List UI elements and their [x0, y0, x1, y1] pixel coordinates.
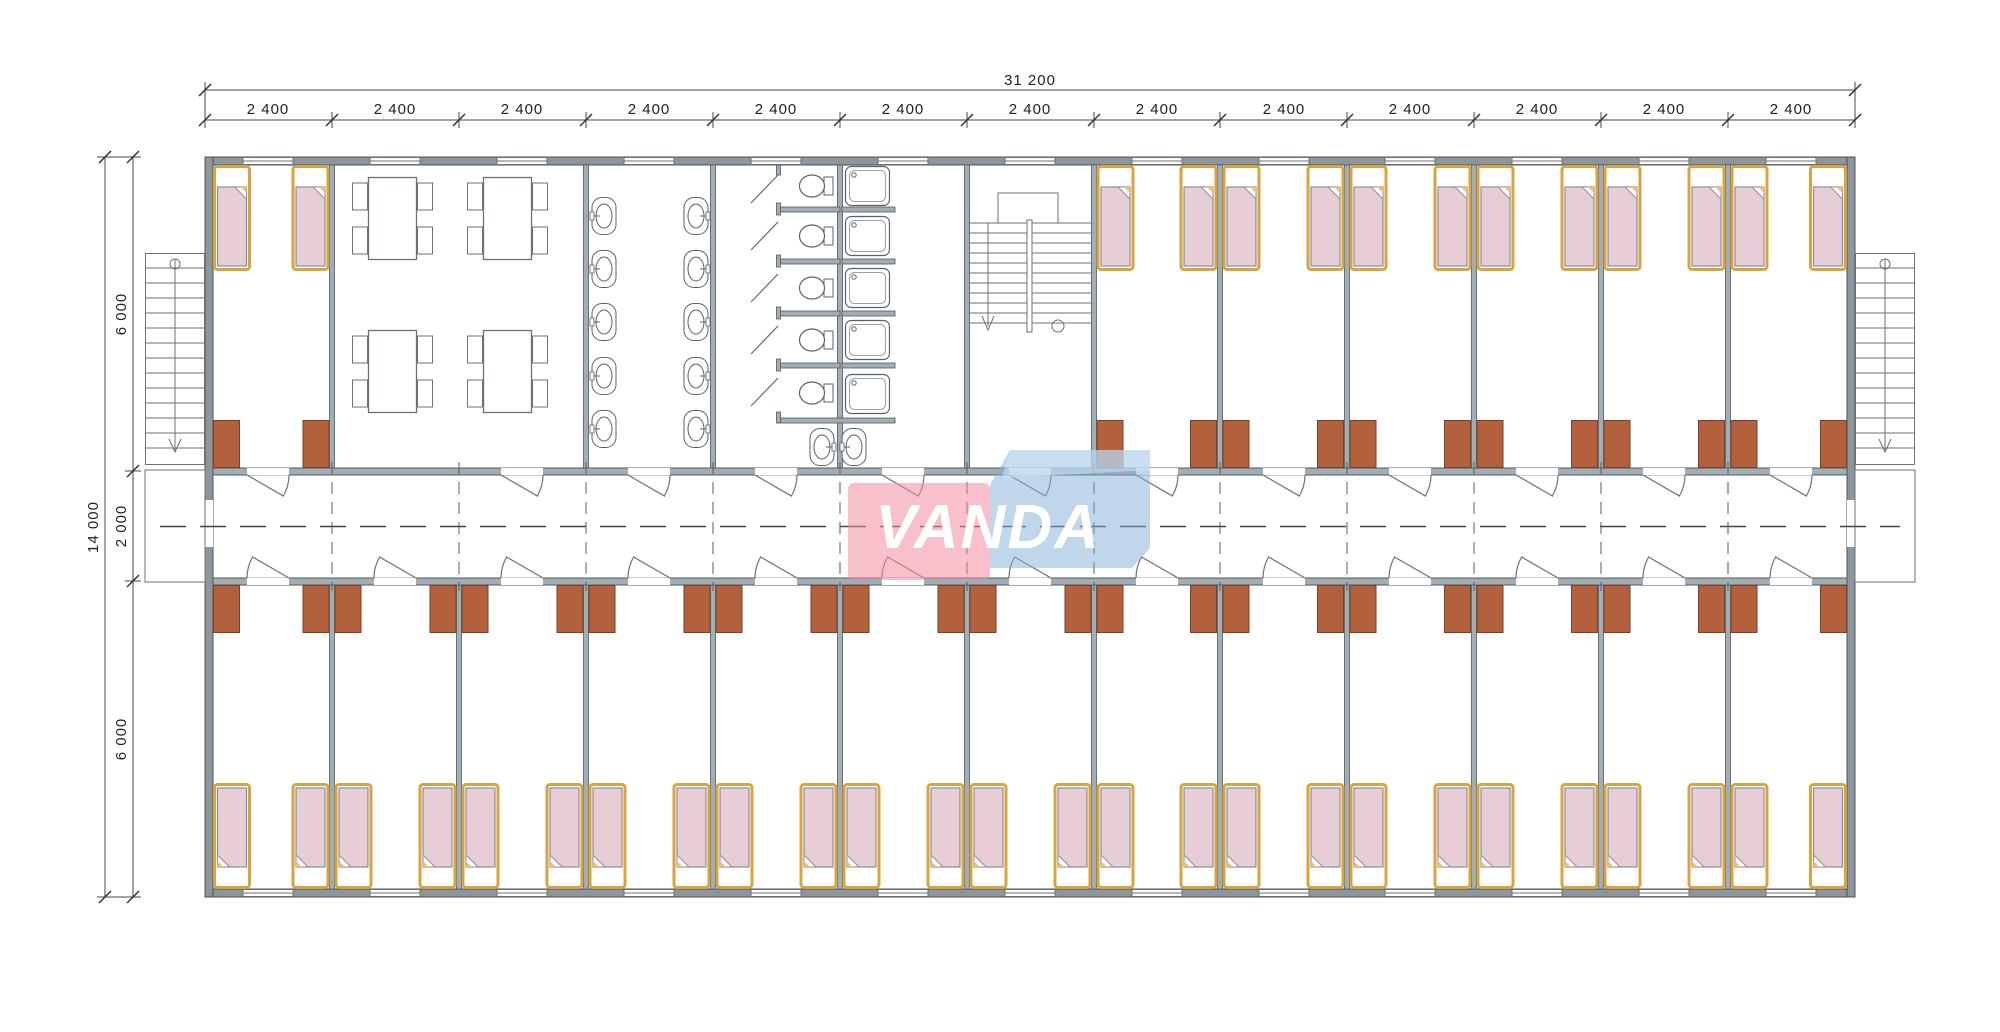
- shower-tray: [846, 321, 890, 360]
- window: [1132, 158, 1182, 165]
- bed: [1224, 167, 1259, 270]
- sink: [590, 304, 616, 341]
- showers: [846, 167, 890, 414]
- bed: [1478, 785, 1513, 888]
- window: [243, 158, 293, 165]
- height-segment-label: 6 000: [113, 718, 130, 761]
- window: [497, 158, 547, 165]
- dining-table: [468, 331, 548, 413]
- wardrobe: [1477, 421, 1503, 468]
- wardrobe: [462, 586, 488, 633]
- bay-dim-label: 2 400: [1643, 101, 1686, 118]
- wardrobe: [1821, 421, 1847, 468]
- bed: [1351, 167, 1386, 270]
- bed: [674, 785, 709, 888]
- wardrobe: [970, 586, 996, 633]
- door-arc: [501, 468, 543, 496]
- wardrobe: [1097, 586, 1123, 633]
- sink: [590, 358, 616, 395]
- bed: [1478, 167, 1513, 270]
- window: [1132, 890, 1182, 897]
- wardrobe: [1318, 586, 1344, 633]
- dining-room: [353, 178, 548, 413]
- door-arc: [628, 468, 670, 496]
- stall-door: [751, 222, 778, 250]
- bed: [1732, 785, 1767, 888]
- dining-table: [353, 331, 433, 413]
- window: [370, 158, 420, 165]
- window: [1259, 158, 1309, 165]
- stall-door: [751, 274, 778, 302]
- toilet: [800, 175, 834, 197]
- bay-dim-label: 2 400: [628, 101, 671, 118]
- stall-door: [751, 326, 778, 354]
- wardrobe: [1572, 586, 1598, 633]
- wardrobe: [716, 586, 742, 633]
- window: [1005, 158, 1055, 165]
- wardrobe: [1065, 586, 1091, 633]
- bay-dim-label: 2 400: [1389, 101, 1432, 118]
- window: [243, 890, 293, 897]
- bed: [1055, 785, 1090, 888]
- sink: [684, 411, 710, 448]
- dining-table: [353, 178, 433, 260]
- bed: [1351, 785, 1386, 888]
- total-height-label: 14 000: [85, 501, 102, 553]
- wardrobe: [1699, 586, 1725, 633]
- wardrobe: [1699, 421, 1725, 468]
- door-arc: [1516, 557, 1558, 585]
- bed: [293, 167, 328, 270]
- bay-dim-label: 2 400: [1136, 101, 1179, 118]
- floor-plan-svg: 31 200 2 400 2 400 2 400 2 400 2 400 2 4…: [0, 0, 2000, 1032]
- bed: [1181, 167, 1216, 270]
- wardrobe: [811, 586, 837, 633]
- window: [624, 890, 674, 897]
- bed: [1098, 167, 1133, 270]
- wardrobe: [1731, 586, 1757, 633]
- logo-text: VANDA: [875, 493, 1101, 562]
- sink: [590, 198, 616, 235]
- window: [1385, 890, 1435, 897]
- sink: [684, 358, 710, 395]
- door-arc: [1516, 468, 1558, 496]
- bed: [293, 785, 328, 888]
- window: [1639, 158, 1689, 165]
- bay-dim-label: 2 400: [247, 101, 290, 118]
- door-arc: [1770, 468, 1812, 496]
- door-arc: [247, 468, 289, 496]
- window: [1512, 158, 1562, 165]
- door-arc: [755, 557, 797, 585]
- window: [370, 890, 420, 897]
- door-arc: [755, 468, 797, 496]
- bed: [801, 785, 836, 888]
- bay-dim-label: 2 400: [1516, 101, 1559, 118]
- bay-dim-label: 2 400: [755, 101, 798, 118]
- door-arc: [1263, 557, 1305, 585]
- wardrobe: [1604, 421, 1630, 468]
- bed: [928, 785, 963, 888]
- wardrobe: [1350, 421, 1376, 468]
- wardrobe: [1604, 586, 1630, 633]
- wardrobe: [1477, 586, 1503, 633]
- wardrobe: [1445, 421, 1471, 468]
- window: [1385, 158, 1435, 165]
- door-arc: [1770, 557, 1812, 585]
- door-arc: [501, 557, 543, 585]
- wardrobe: [1572, 421, 1598, 468]
- wardrobe: [430, 586, 456, 633]
- exterior-stair: [145, 254, 205, 465]
- wardrobe: [589, 586, 615, 633]
- wardrobe: [1821, 586, 1847, 633]
- window: [1639, 890, 1689, 897]
- sink: [684, 251, 710, 288]
- door-arc: [1136, 557, 1178, 585]
- wardrobe: [1350, 586, 1376, 633]
- total-width-label: 31 200: [1004, 72, 1056, 89]
- sink: [590, 411, 616, 448]
- dimension-left-labels: 14 000 6 000 2 000 6 000: [85, 293, 130, 761]
- bed: [717, 785, 752, 888]
- bed: [590, 785, 625, 888]
- door-arc: [1643, 557, 1685, 585]
- dining-table: [468, 178, 548, 260]
- window: [751, 890, 801, 897]
- wardrobe: [1223, 421, 1249, 468]
- bed: [1562, 785, 1597, 888]
- dimension-top-labels: 31 200 2 400 2 400 2 400 2 400 2 400 2 4…: [247, 72, 1813, 118]
- bed: [1605, 785, 1640, 888]
- bed: [336, 785, 371, 888]
- wardrobe: [1223, 586, 1249, 633]
- bed: [547, 785, 582, 888]
- floor-plan-canvas: 31 200 2 400 2 400 2 400 2 400 2 400 2 4…: [0, 0, 2000, 1032]
- sink: [840, 429, 866, 466]
- door-arc: [247, 557, 289, 585]
- bed: [844, 785, 879, 888]
- bed: [215, 167, 250, 270]
- bed: [1562, 167, 1597, 270]
- window: [1766, 890, 1816, 897]
- window: [878, 890, 928, 897]
- wardrobe: [1191, 586, 1217, 633]
- wardrobe: [335, 586, 361, 633]
- door-arc: [374, 557, 416, 585]
- window: [751, 158, 801, 165]
- toilet: [800, 382, 834, 404]
- bed: [1689, 785, 1724, 888]
- height-segment-label: 6 000: [113, 293, 130, 336]
- bed: [1181, 785, 1216, 888]
- door-arc: [1263, 468, 1305, 496]
- bed: [1732, 167, 1767, 270]
- wardrobe: [303, 586, 329, 633]
- toilet: [800, 277, 834, 299]
- staircase-left-exterior: [145, 254, 205, 583]
- bed: [1811, 785, 1846, 888]
- bed: [1098, 785, 1133, 888]
- wardrobe: [843, 586, 869, 633]
- wardrobe: [1445, 586, 1471, 633]
- window: [1766, 158, 1816, 165]
- door-arc: [1389, 468, 1431, 496]
- bed: [1224, 785, 1259, 888]
- bed: [1308, 167, 1343, 270]
- bed: [1435, 785, 1470, 888]
- bed: [971, 785, 1006, 888]
- shower-tray: [846, 217, 890, 256]
- toilet: [800, 329, 834, 351]
- wardrobe: [557, 586, 583, 633]
- door-arc: [1389, 557, 1431, 585]
- shower-tray: [846, 167, 890, 206]
- wardrobe: [303, 421, 329, 468]
- staircase-right-exterior: [1855, 254, 1915, 583]
- bay-dim-label: 2 400: [1263, 101, 1306, 118]
- toilet: [800, 225, 834, 247]
- stall-door: [751, 378, 778, 406]
- sink: [684, 198, 710, 235]
- wardrobe: [938, 586, 964, 633]
- window: [1005, 890, 1055, 897]
- sink: [590, 251, 616, 288]
- bed: [420, 785, 455, 888]
- height-segment-label: 2 000: [113, 505, 130, 548]
- window: [1259, 890, 1309, 897]
- bay-dim-label: 2 400: [1009, 101, 1052, 118]
- shower-tray: [846, 269, 890, 308]
- bed: [215, 785, 250, 888]
- bed: [1605, 167, 1640, 270]
- wardrobe: [1318, 421, 1344, 468]
- bed: [1308, 785, 1343, 888]
- bed: [463, 785, 498, 888]
- sink: [684, 304, 710, 341]
- window: [624, 158, 674, 165]
- stall-door: [751, 175, 778, 203]
- bay-dim-label: 2 400: [1770, 101, 1813, 118]
- door-arc: [1643, 468, 1685, 496]
- door-arc: [628, 557, 670, 585]
- shower-tray: [846, 375, 890, 414]
- bed: [1811, 167, 1846, 270]
- wardrobe: [1191, 421, 1217, 468]
- wardrobe: [1731, 421, 1757, 468]
- exterior-stair: [1855, 254, 1915, 465]
- wardrobe: [214, 586, 240, 633]
- sink: [810, 429, 836, 466]
- wardrobe: [684, 586, 710, 633]
- bed: [1435, 167, 1470, 270]
- bed: [1689, 167, 1724, 270]
- bay-dim-label: 2 400: [501, 101, 544, 118]
- window: [1512, 890, 1562, 897]
- staircase-interior: [970, 193, 1092, 332]
- window: [878, 158, 928, 165]
- window: [497, 890, 547, 897]
- bay-dim-label: 2 400: [374, 101, 417, 118]
- wardrobe: [214, 421, 240, 468]
- partition-walls-bottom: [330, 585, 1731, 889]
- bay-dim-label: 2 400: [882, 101, 925, 118]
